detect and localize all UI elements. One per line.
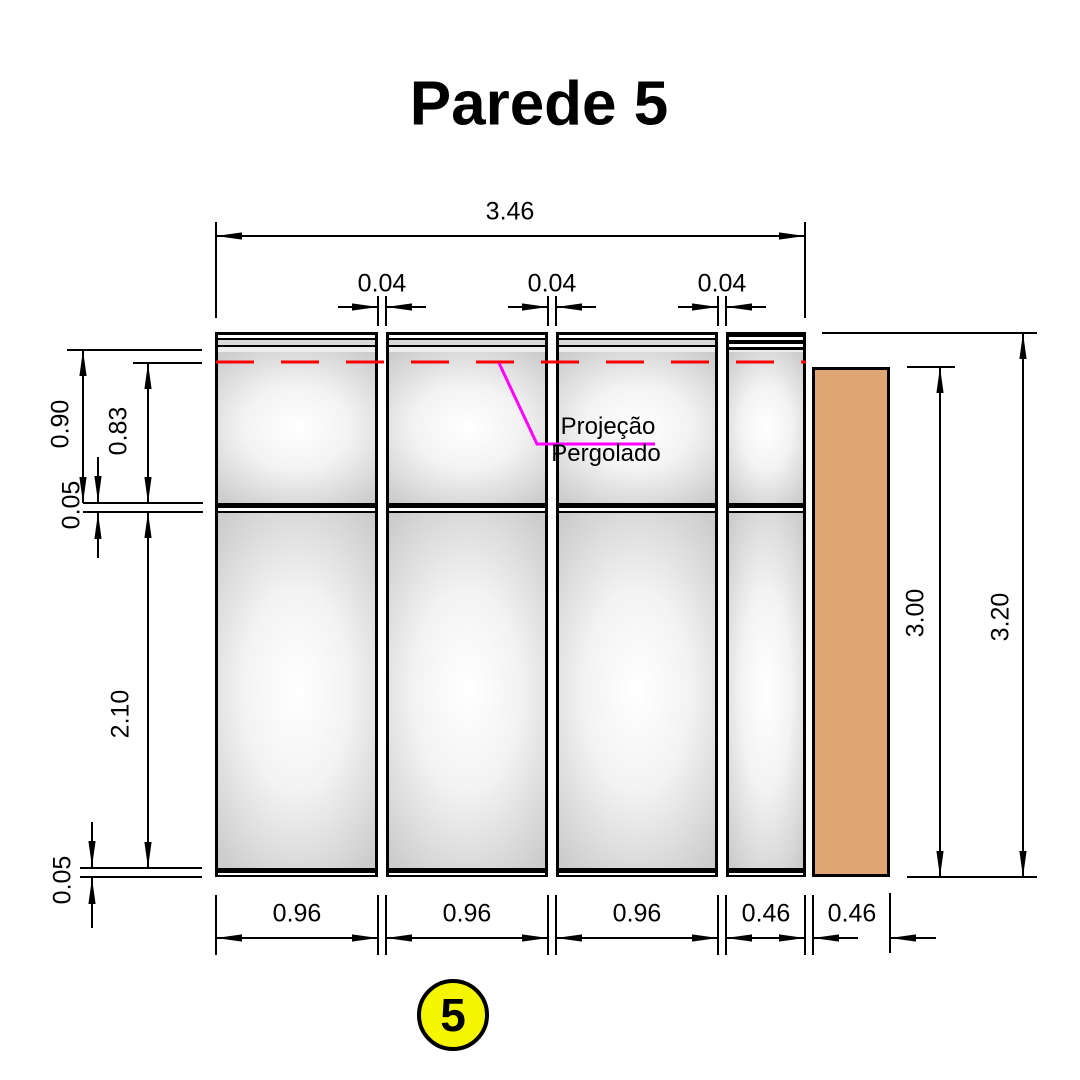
glass-panel-1 <box>215 332 378 877</box>
dim-label-gap-1: 0.04 <box>358 272 407 297</box>
projection-callout-line1: Projeção <box>561 415 656 439</box>
dim-label-bottom-5: 0.46 <box>828 902 877 927</box>
panel-lower-glass <box>389 513 545 868</box>
panel-top-rail <box>559 332 715 352</box>
dim-label-left-inner: 0.83 <box>107 407 132 456</box>
wall-number: 5 <box>440 988 466 1042</box>
panel-mid-rail <box>729 503 803 513</box>
elevation-drawing: Parede 5 <box>0 0 1080 1080</box>
masonry-column <box>812 367 890 877</box>
glass-panel-2 <box>386 332 548 877</box>
panel-mid-rail <box>389 503 545 513</box>
panel-upper-glass <box>218 352 375 503</box>
projection-callout-line2: Pergolado <box>551 442 660 466</box>
dim-label-gap-3: 0.04 <box>698 272 747 297</box>
dim-label-bottom-3: 0.96 <box>613 902 662 927</box>
panel-top-rail <box>729 332 803 352</box>
page-title: Parede 5 <box>410 69 669 140</box>
panel-bottom-rail <box>389 868 545 877</box>
dim-label-gap-2: 0.04 <box>528 272 577 297</box>
dim-label-right-inner: 3.00 <box>904 589 929 638</box>
panel-top-rail <box>218 332 375 352</box>
dim-label-left-gap-lower: 0.05 <box>51 856 76 905</box>
dim-label-left-lower: 2.10 <box>109 690 134 739</box>
wall-number-badge: 5 <box>417 979 489 1051</box>
dim-label-right-outer: 3.20 <box>989 593 1014 642</box>
dim-label-bottom-4: 0.46 <box>742 902 791 927</box>
panel-bottom-rail <box>729 868 803 877</box>
dim-label-bottom-1: 0.96 <box>273 902 322 927</box>
glass-panel-4 <box>726 332 806 877</box>
panel-top-rail <box>389 332 545 352</box>
panel-mid-rail <box>559 503 715 513</box>
panel-lower-glass <box>218 513 375 868</box>
gap-dimension-group <box>338 296 766 326</box>
panel-lower-glass <box>559 513 715 868</box>
dim-label-total-width: 3.46 <box>486 200 535 225</box>
panel-lower-glass <box>729 513 803 868</box>
panel-upper-glass <box>729 352 803 503</box>
dim-label-left-gap-upper: 0.05 <box>60 481 85 530</box>
left-dimension-group <box>67 350 203 928</box>
panel-upper-glass <box>389 352 545 503</box>
panel-bottom-rail <box>218 868 375 877</box>
dim-label-bottom-2: 0.96 <box>443 902 492 927</box>
panel-mid-rail <box>218 503 375 513</box>
dim-label-left-outer: 0.90 <box>49 400 74 449</box>
panel-bottom-rail <box>559 868 715 877</box>
